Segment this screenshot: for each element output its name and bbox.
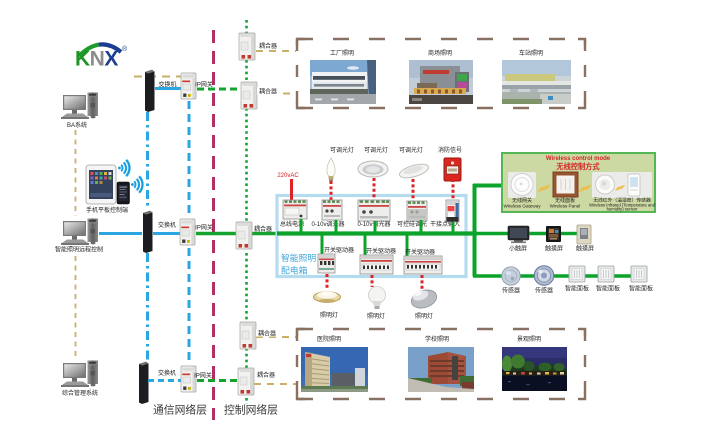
svg-text:照明灯: 照明灯 — [367, 312, 385, 320]
svg-text:商场照明: 商场照明 — [428, 49, 452, 57]
svg-text:控制网络层: 控制网络层 — [224, 403, 278, 417]
svg-text:耦合器: 耦合器 — [258, 330, 276, 338]
svg-text:干接点输入: 干接点输入 — [430, 220, 460, 228]
svg-text:触摸屏: 触摸屏 — [545, 245, 563, 253]
svg-text:Wireless Panel: Wireless Panel — [550, 204, 581, 209]
svg-text:耦合器: 耦合器 — [257, 371, 275, 379]
svg-text:可调光灯: 可调光灯 — [330, 146, 354, 154]
svg-text:照明灯: 照明灯 — [320, 311, 338, 319]
svg-text:智能面板: 智能面板 — [596, 285, 620, 293]
svg-text:照明灯: 照明灯 — [415, 312, 433, 320]
svg-text:消防信号: 消防信号 — [438, 146, 462, 154]
svg-text:IP网关: IP网关 — [195, 224, 213, 232]
svg-text:小触屏: 小触屏 — [509, 245, 527, 253]
svg-text:可调光灯: 可调光灯 — [399, 146, 423, 154]
svg-text:传感器: 传感器 — [535, 287, 553, 295]
svg-text:BA系统: BA系统 — [67, 121, 87, 129]
svg-text:学校照明: 学校照明 — [425, 335, 449, 343]
svg-text:可控硅调光: 可控硅调光 — [397, 220, 427, 228]
svg-text:通信网络层: 通信网络层 — [153, 403, 207, 417]
svg-text:耦合器: 耦合器 — [254, 225, 272, 233]
svg-text:智能面板: 智能面板 — [565, 285, 589, 293]
svg-text:交换机: 交换机 — [158, 221, 176, 229]
svg-text:智能照明远程控制: 智能照明远程控制 — [55, 246, 103, 254]
svg-text:IP网关: IP网关 — [195, 81, 213, 89]
svg-text:开关驱动器: 开关驱动器 — [405, 248, 435, 256]
svg-text:智能面板: 智能面板 — [629, 285, 653, 293]
svg-text:耦合器: 耦合器 — [259, 42, 277, 50]
svg-text:KNX: KNX — [75, 48, 118, 71]
svg-text:开关驱动器: 开关驱动器 — [366, 247, 396, 255]
svg-text:触摸屏: 触摸屏 — [576, 245, 594, 253]
svg-text:开关驱动器: 开关驱动器 — [324, 246, 354, 254]
svg-text:无线控制方式: 无线控制方式 — [555, 162, 600, 171]
svg-text:车站照明: 车站照明 — [519, 49, 543, 57]
svg-text:耦合器: 耦合器 — [259, 88, 277, 96]
svg-text:humidity) sensor: humidity) sensor — [607, 207, 638, 212]
svg-text:可调光灯: 可调光灯 — [364, 146, 388, 154]
svg-text:工厂照明: 工厂照明 — [330, 50, 354, 57]
svg-text:配电箱: 配电箱 — [281, 265, 308, 276]
svg-text:®: ® — [122, 45, 128, 53]
svg-text:交换机: 交换机 — [158, 369, 176, 377]
svg-text:综合管理系统: 综合管理系统 — [62, 389, 98, 397]
svg-text:Wireless Gateway: Wireless Gateway — [503, 204, 541, 209]
svg-text:传感器: 传感器 — [502, 287, 520, 295]
svg-text:0-10v调光器: 0-10v调光器 — [311, 220, 344, 228]
svg-text:医院照明: 医院照明 — [317, 335, 341, 343]
svg-text:智能照明: 智能照明 — [281, 252, 316, 263]
svg-text:景观照明: 景观照明 — [517, 336, 541, 343]
svg-text:IP网关: IP网关 — [194, 372, 212, 380]
svg-text:220vAC: 220vAC — [277, 173, 299, 179]
svg-text:手机平板控制端: 手机平板控制端 — [86, 206, 128, 214]
